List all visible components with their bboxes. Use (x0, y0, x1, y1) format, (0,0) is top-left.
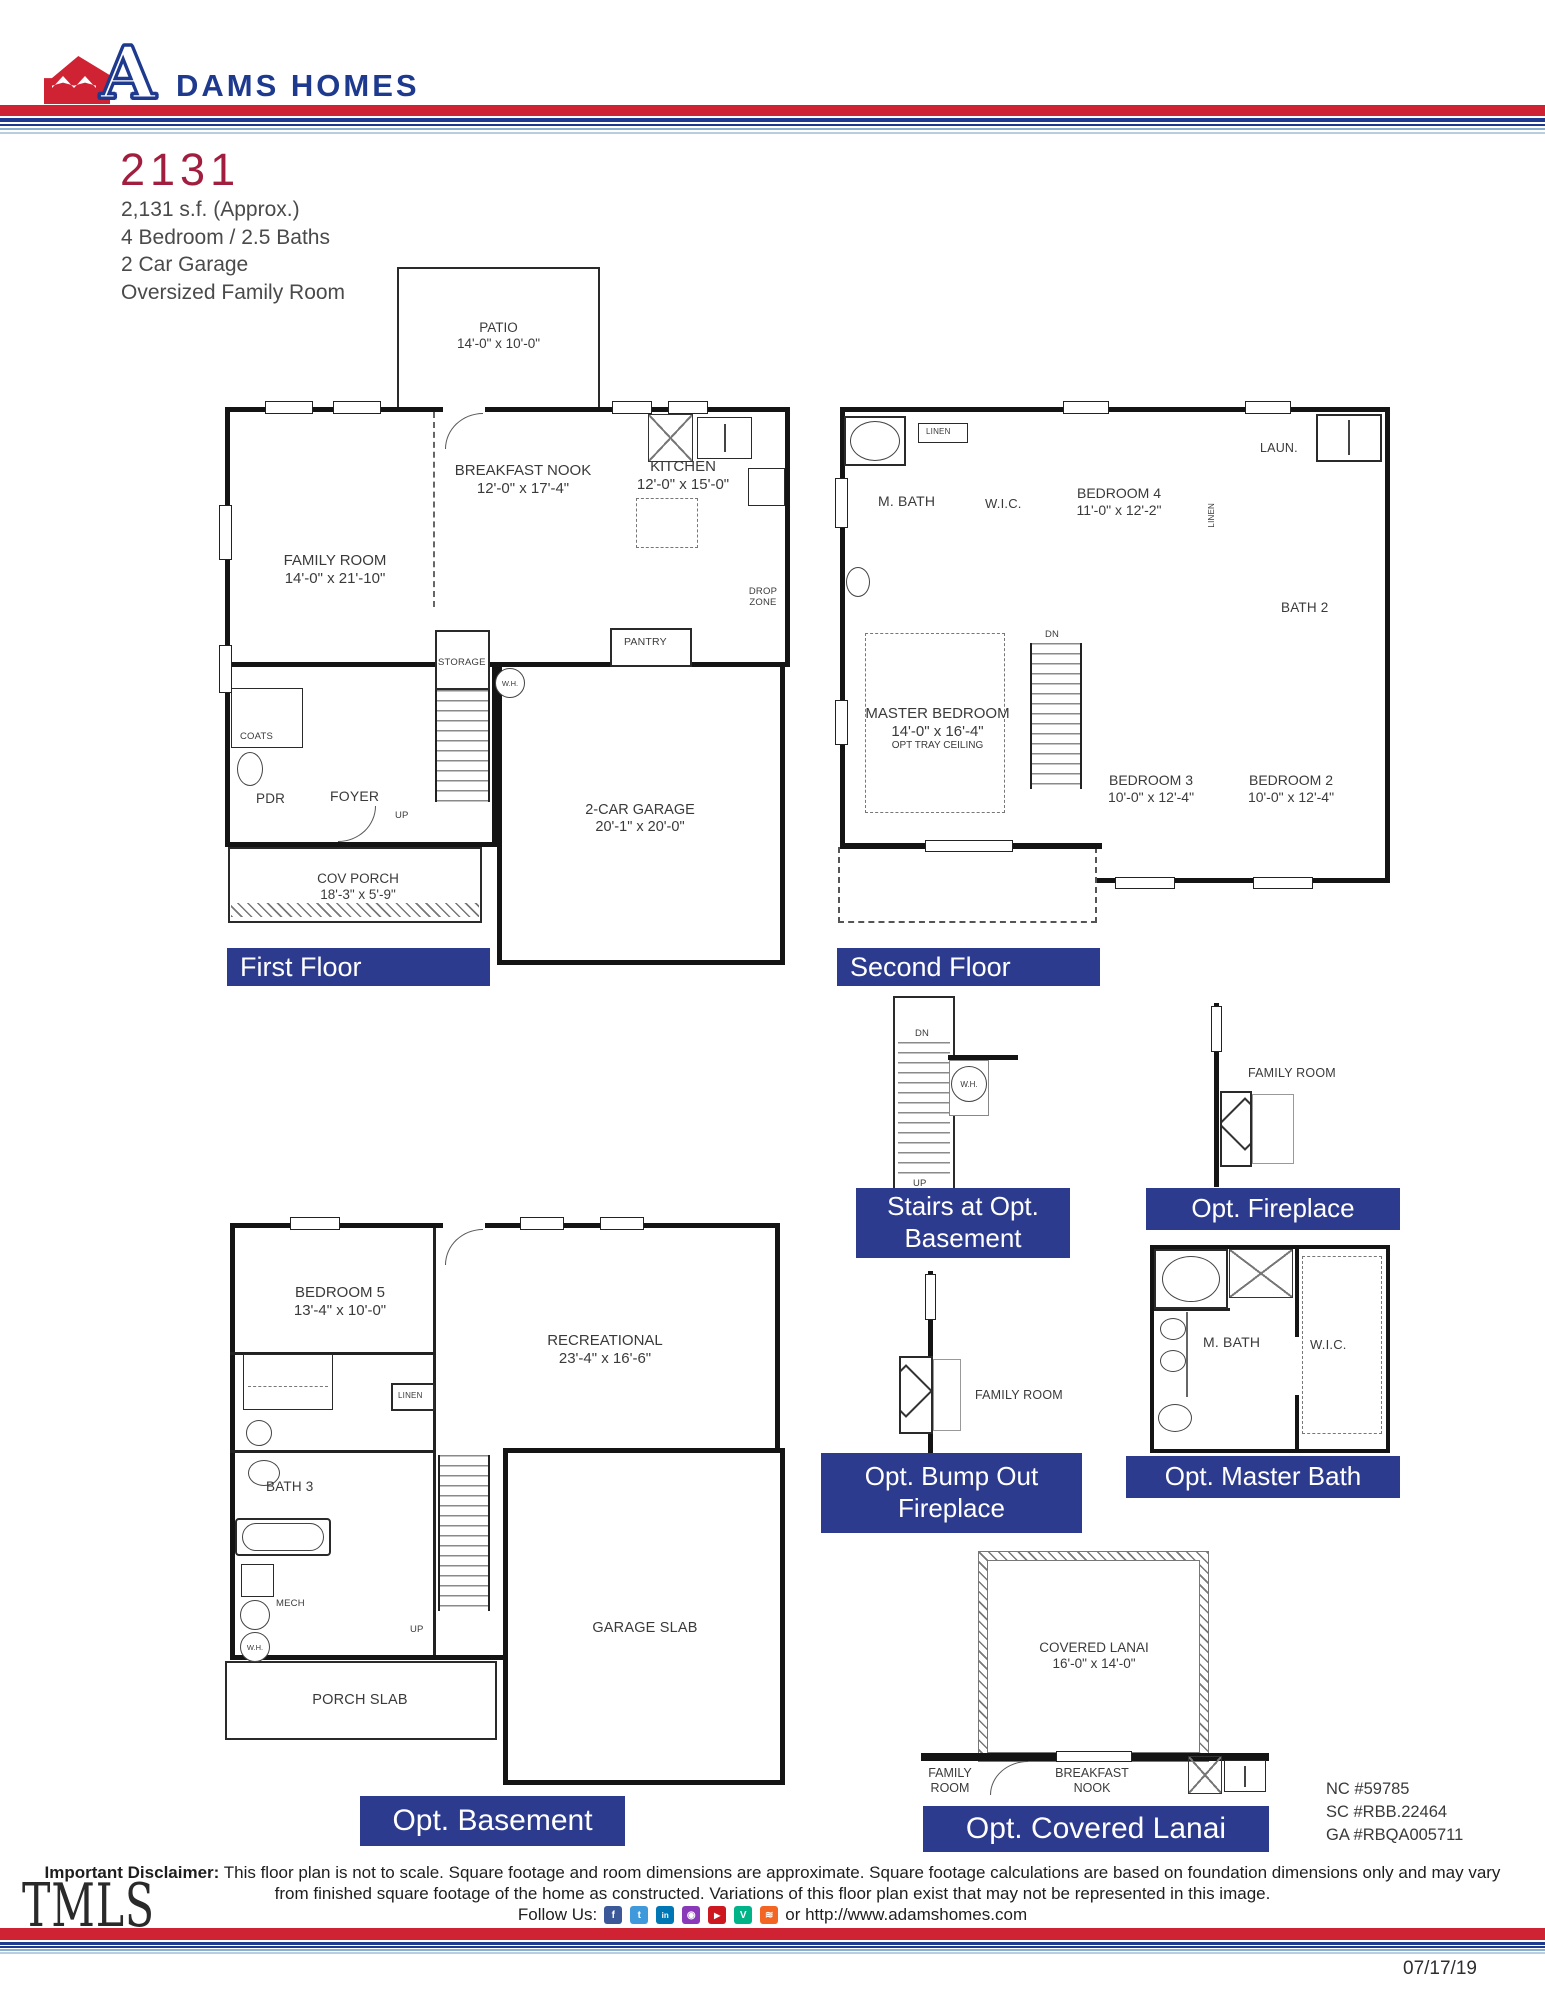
window (925, 840, 1013, 852)
room-patio: PATIO 14'-0" x 10'-0" (397, 320, 600, 352)
ff-stairs (435, 690, 490, 802)
of-firebox (1220, 1091, 1252, 1167)
bs-mech-unit (240, 1600, 270, 1630)
of-family-room: FAMILY ROOM (1248, 1066, 1336, 1080)
window (219, 645, 232, 693)
kitchen-island (636, 498, 698, 548)
opt-covered-lanai-label: Opt. Covered Lanai (923, 1806, 1269, 1852)
omb-mbath: M. BATH (1203, 1334, 1260, 1350)
plan-beds-baths: 4 Bedroom / 2.5 Baths (121, 224, 366, 252)
adams-homes-logo: A DAMS HOMES (40, 28, 540, 108)
license-nc: NC #59785 (1326, 1778, 1463, 1801)
room-drop-zone: DROP ZONE (740, 586, 786, 609)
bs-tub-basin (242, 1523, 324, 1551)
obo-family-room: FAMILY ROOM (975, 1388, 1063, 1402)
room-coats: COATS (240, 731, 273, 742)
twitter-icon[interactable]: t (630, 1906, 648, 1924)
plan-number: 2131 (120, 144, 240, 196)
ff-stairs-up: UP (395, 810, 409, 821)
room-covered-lanai: COVERED LANAI 16'-0" x 14'-0" (1013, 1640, 1175, 1672)
room-m-bath: M. BATH (878, 493, 935, 509)
bs-wall (230, 1450, 435, 1453)
patio-door-gap (443, 402, 485, 413)
sob-dn: DN (915, 1028, 929, 1039)
lanai-breakfast-nook: BREAKFAST NOOK (1040, 1766, 1144, 1796)
room-linen-2: LINEN (1207, 503, 1216, 528)
follow-row: Follow Us: f t in ◉ ▶ V ≋ or http://www.… (0, 1905, 1545, 1925)
opt-master-bath-label: Opt. Master Bath (1126, 1456, 1400, 1498)
of-firebox-chevron (1220, 1097, 1252, 1151)
rss-icon[interactable]: ≋ (760, 1906, 778, 1924)
bs-closet (243, 1354, 333, 1410)
room-bath3: BATH 3 (266, 1479, 313, 1494)
room-mech: MECH (276, 1598, 305, 1609)
footer-stripe-navy1 (0, 1942, 1545, 1945)
license-sc: SC #RBB.22464 (1326, 1801, 1463, 1824)
brand-letter-a: A (100, 30, 156, 115)
bs-wall (433, 1228, 436, 1655)
room-bath2: BATH 2 (1281, 600, 1328, 615)
window (520, 1217, 564, 1230)
license-ga: GA #RBQA005711 (1326, 1824, 1463, 1847)
room-family-room: FAMILY ROOM 14'-0" x 21'-10" (235, 552, 435, 587)
room-garage-slab: GARAGE SLAB (555, 1620, 735, 1636)
header-stripe-blue1 (0, 128, 1545, 130)
room-foyer: FOYER (330, 788, 379, 804)
window (333, 401, 381, 414)
window (1211, 1006, 1222, 1052)
room-master-bedroom: MASTER BEDROOM 14'-0" x 16'-4" OPT TRAY … (845, 705, 1030, 752)
window (1253, 877, 1313, 889)
lanai-family-room: FAMILY ROOM (918, 1766, 982, 1796)
omb-wall (1295, 1395, 1299, 1453)
window (925, 1274, 936, 1320)
website-link[interactable]: or http://www.adamshomes.com (785, 1905, 1027, 1925)
omb-sink (1160, 1318, 1186, 1340)
floorplan-sheet: A DAMS HOMES 2131 2,131 s.f. (Approx.) 4… (0, 0, 1545, 2000)
room-storage: STORAGE (438, 657, 486, 668)
header-stripe-blue2 (0, 132, 1545, 134)
sf-toilet (846, 567, 870, 597)
bs-stairs-up: UP (410, 1624, 424, 1635)
second-floor-label: Second Floor (837, 948, 1100, 986)
room-porch-slab: PORCH SLAB (270, 1692, 450, 1708)
plan-specs: 2,131 s.f. (Approx.) 4 Bedroom / 2.5 Bat… (121, 196, 366, 306)
room-bedroom4: BEDROOM 4 11'-0" x 12'-2" (1049, 485, 1189, 518)
instagram-icon[interactable]: ◉ (682, 1906, 700, 1924)
room-bs-linen: LINEN (398, 1391, 423, 1400)
omb-tub-basin (1162, 1256, 1220, 1302)
disclaimer: Important Disclaimer: This floor plan is… (40, 1862, 1505, 1904)
room-recreational: RECREATIONAL 23'-4" x 16'-6" (500, 1332, 710, 1367)
footer-stripe-blue2 (0, 1952, 1545, 1954)
lanai-kitchen-basin (1224, 1760, 1266, 1792)
sf-opt-basement-footprint (838, 847, 1097, 923)
window (265, 401, 313, 414)
omb-toilet (1158, 1404, 1192, 1432)
sf-tub-basin (850, 421, 900, 461)
room-laundry: LAUN. (1260, 441, 1298, 455)
omb-sink (1160, 1350, 1186, 1372)
opt-bump-out-label: Opt. Bump Out Fireplace (821, 1453, 1082, 1533)
water-heater: W.H. (495, 668, 525, 698)
omb-wall (1295, 1245, 1299, 1337)
lanai-kitchen-sink (1188, 1756, 1222, 1794)
window (1115, 877, 1175, 889)
room-garage: 2-CAR GARAGE 20'-1" x 20'-0" (530, 802, 750, 836)
stairs-opt-basement-label: Stairs at Opt. Basement (856, 1188, 1070, 1258)
kitchen-basin (697, 417, 752, 459)
plan-feature: Oversized Family Room (121, 279, 366, 307)
plan-sqft: 2,131 s.f. (Approx.) (121, 196, 366, 224)
window (668, 401, 708, 414)
header-stripe-red (0, 105, 1545, 116)
bs-garage-slab-outline (503, 1448, 785, 1785)
kitchen-sink (648, 414, 693, 462)
ff-porch-hatch (231, 903, 479, 917)
pdr-toilet (237, 752, 263, 786)
bs-shelf (241, 1564, 274, 1597)
omb-vanity-line (1186, 1312, 1188, 1397)
sob-water-heater: W.H. (951, 1066, 987, 1102)
window (612, 401, 652, 414)
header-stripe-navy2 (0, 124, 1545, 126)
disclaimer-text: This floor plan is not to scale. Square … (224, 1863, 1501, 1903)
youtube-icon[interactable]: ▶ (708, 1906, 726, 1924)
sf-stairs (1030, 643, 1082, 789)
room-bedroom3: BEDROOM 3 10'-0" x 12'-4" (1091, 772, 1211, 805)
footer-stripe-navy2 (0, 1946, 1545, 1948)
plan-garage: 2 Car Garage (121, 251, 366, 279)
room-pantry: PANTRY (624, 636, 667, 648)
room-wic: W.I.C. (985, 496, 1022, 511)
footer-stripe-red (0, 1928, 1545, 1940)
linkedin-icon[interactable]: in (656, 1906, 674, 1924)
facebook-icon[interactable]: f (604, 1906, 622, 1924)
bs-door-gap (443, 1218, 485, 1229)
obo-firebox (899, 1356, 933, 1434)
bs-closet-rod (248, 1386, 328, 1387)
room-bedroom2: BEDROOM 2 10'-0" x 12'-4" (1231, 772, 1351, 805)
room-cov-porch: COV PORCH 18'-3" x 5'-9" (258, 871, 458, 903)
header-stripe-navy1 (0, 118, 1545, 122)
window (1245, 401, 1291, 414)
omb-shower (1229, 1249, 1293, 1298)
first-floor-label: First Floor (227, 948, 490, 986)
revision-date: 07/17/19 (1403, 1958, 1477, 1980)
sf-stairs-dn: DN (1045, 629, 1059, 640)
bs-sink (246, 1420, 272, 1446)
sob-stairs (898, 1042, 950, 1180)
bs-water-heater: W.H. (240, 1632, 270, 1662)
disclaimer-label: Important Disclaimer: (45, 1863, 220, 1882)
of-hearth (1252, 1094, 1294, 1164)
bs-stairs (438, 1455, 490, 1611)
window (219, 505, 232, 560)
obo-firebox-chevron (899, 1364, 933, 1418)
opt-fireplace-label: Opt. Fireplace (1146, 1188, 1400, 1230)
brand-name: DAMS HOMES (176, 68, 420, 104)
room-linen-1: LINEN (926, 427, 951, 436)
window (1056, 1751, 1132, 1762)
sf-washer-dryer (1316, 414, 1382, 462)
follow-us-label: Follow Us: (518, 1905, 597, 1925)
room-breakfast-nook: BREAKFAST NOOK 12'-0" x 17'-4" (423, 462, 623, 497)
opt-basement-label: Opt. Basement (360, 1796, 625, 1846)
window (1063, 401, 1109, 414)
footer-stripe-blue1 (0, 1949, 1545, 1951)
room-pdr: PDR (256, 791, 285, 806)
vine-icon[interactable]: V (734, 1906, 752, 1924)
window (835, 478, 848, 528)
window (600, 1217, 644, 1230)
window (290, 1217, 340, 1230)
license-numbers: NC #59785 SC #RBB.22464 GA #RBQA005711 (1326, 1778, 1463, 1847)
lanai-door-arc (990, 1761, 1028, 1795)
obo-hearth (933, 1359, 961, 1431)
room-kitchen: KITCHEN 12'-0" x 15'-0" (603, 458, 763, 493)
omb-wic: W.I.C. (1310, 1337, 1347, 1352)
room-bedroom5: BEDROOM 5 13'-4" x 10'-0" (250, 1284, 430, 1319)
